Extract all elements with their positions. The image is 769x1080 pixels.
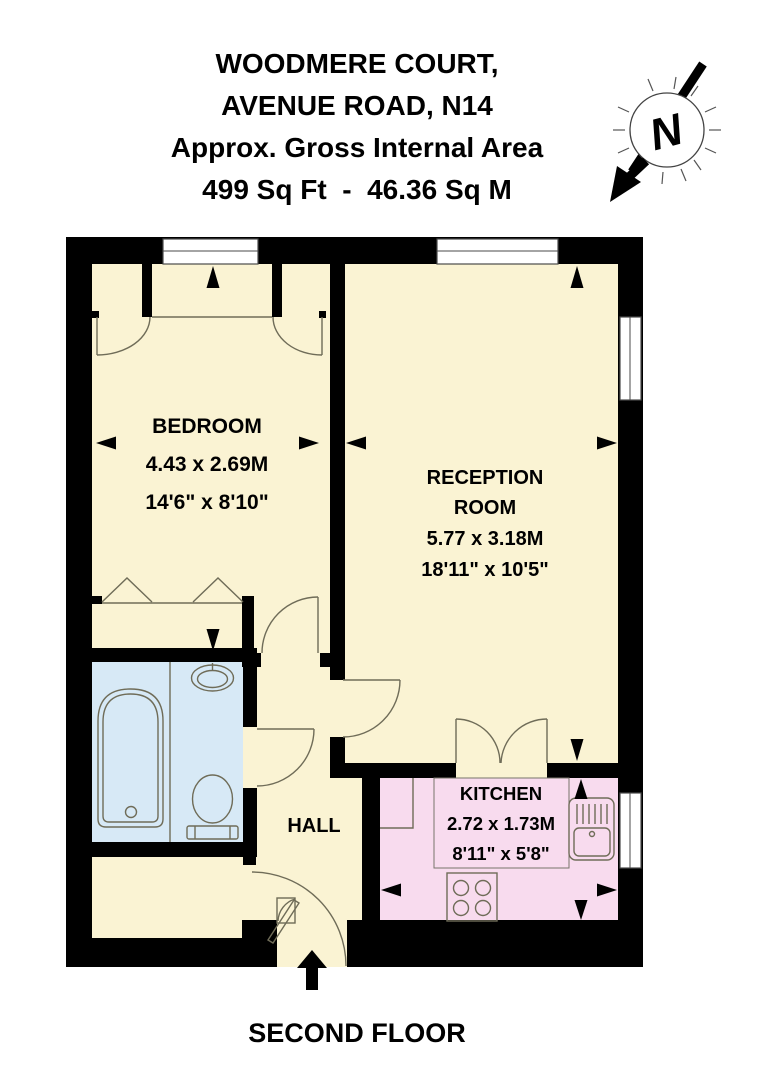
hall-name: HALL (287, 815, 340, 837)
kitchen-dims-m: 2.72 x 1.73M (447, 813, 555, 834)
address-line-2: AVENUE ROAD, N14 (221, 90, 493, 121)
area-label: Approx. Gross Internal Area (171, 132, 544, 163)
compass-north-icon: N (610, 64, 721, 202)
reception-dims-ft: 18'11" x 10'5" (421, 559, 548, 581)
floorplan-page: WOODMERE COURT, AVENUE ROAD, N14 Approx.… (0, 0, 769, 1080)
bedroom-dims-m: 4.43 x 2.69M (146, 453, 269, 476)
reception-name-1: RECEPTION (427, 467, 544, 489)
bedroom-name: BEDROOM (152, 415, 262, 438)
title-block: WOODMERE COURT, AVENUE ROAD, N14 Approx.… (171, 48, 544, 205)
reception-name-2: ROOM (454, 497, 516, 519)
reception-window-top (437, 239, 558, 264)
reception-dims-m: 5.77 x 3.18M (427, 528, 544, 550)
kitchen-dims-ft: 8'11" x 5'8" (452, 843, 549, 864)
reception-window-side (620, 317, 641, 400)
floor-label: SECOND FLOOR (248, 1018, 466, 1048)
bedroom-dims-ft: 14'6" x 8'10" (145, 491, 268, 514)
bedroom-window (163, 239, 258, 264)
kitchen-window (620, 793, 641, 868)
kitchen-name: KITCHEN (460, 783, 542, 804)
area-value: 499 Sq Ft - 46.36 Sq M (202, 174, 512, 205)
address-line-1: WOODMERE COURT, (215, 48, 498, 79)
bathroom-floor (92, 662, 243, 842)
floorplan-svg: WOODMERE COURT, AVENUE ROAD, N14 Approx.… (0, 0, 769, 1080)
